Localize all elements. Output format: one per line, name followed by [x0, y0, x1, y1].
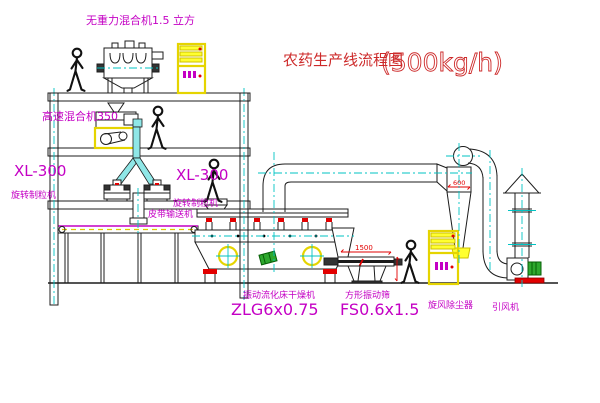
- label-gravity-mixer: 无重力混合机1.5 立方: [86, 13, 195, 27]
- drawing-title: 农药生产线流程图 (500kg/h): [283, 48, 503, 77]
- worker-figure-near-screen: [402, 241, 419, 283]
- control-cabinet-top: [178, 44, 205, 93]
- granulator-left-unit: [104, 180, 130, 201]
- label-granulator-right-model: XL-300: [176, 166, 228, 184]
- gravity-free-mixer: [97, 41, 163, 93]
- label-screen-model: FS0.6x1.5: [340, 300, 419, 319]
- worker-figure-top-floor: [68, 49, 85, 91]
- fluid-bed-dryer: [195, 199, 350, 283]
- cad-drawing-canvas: 农药生产线流程图 (500kg/h) 无重力混合机1.5 立方 高速混合机350…: [0, 0, 600, 403]
- worker-figure-mid-floor: [149, 107, 166, 149]
- label-granulator-left-name: 旋转制粒机: [11, 189, 56, 201]
- label-dryer-model: ZLG6x0.75: [231, 300, 319, 319]
- dim-cyclone-diameter: 600: [453, 179, 465, 187]
- label-granulator-right-name: 旋转制粒机: [173, 197, 218, 209]
- dryer-feet: [201, 269, 339, 283]
- label-belt-conveyor: 皮带输送机: [148, 208, 193, 220]
- induced-draft-fan: [483, 250, 544, 283]
- label-fan-name: 引风机: [492, 301, 519, 313]
- label-cyclone-name: 旋风除尘器: [428, 299, 473, 311]
- spring-mounts: [206, 218, 332, 230]
- exhaust-duct: [263, 164, 447, 212]
- label-high-speed-mixer: 高速混合机350: [42, 109, 118, 123]
- title-capacity: (500kg/h): [381, 48, 503, 77]
- dim-screen-width: 1500: [355, 244, 373, 252]
- label-granulator-left-model: XL-300: [14, 162, 66, 180]
- process-flow-diagram: 农药生产线流程图 (500kg/h) 无重力混合机1.5 立方 高速混合机350…: [0, 0, 600, 403]
- granulator-right-unit: [144, 180, 170, 201]
